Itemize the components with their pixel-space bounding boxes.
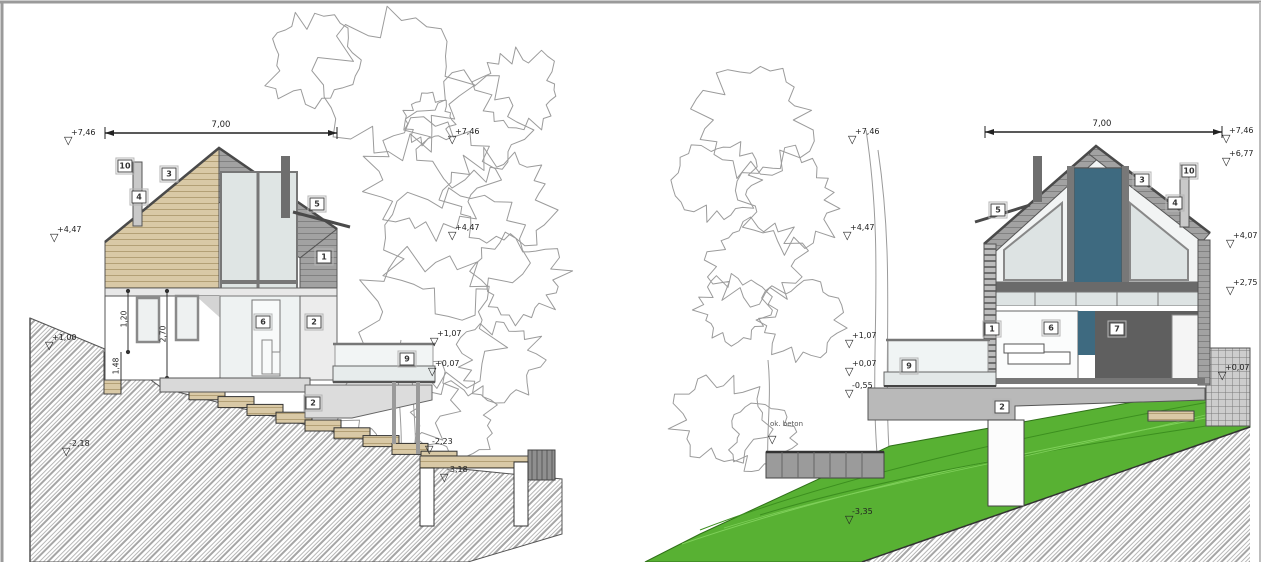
central-blue-window: [1074, 168, 1122, 290]
lower-slab: [305, 385, 432, 418]
chimney: [281, 156, 290, 218]
sections-drawing: [0, 0, 1280, 562]
balustrade-glass: [888, 340, 988, 372]
balcony-deck: [884, 372, 996, 386]
foundation-pier: [514, 462, 528, 526]
top-dimension-line: [105, 127, 337, 139]
bed-furniture: [1008, 352, 1070, 364]
clerestory-band: [994, 292, 1200, 306]
blue-glass-slice: [1078, 311, 1095, 355]
interior-door: [252, 300, 280, 376]
gable-wood-cladding: [105, 148, 219, 290]
wall-strip-right: [1198, 240, 1210, 385]
left-view: [30, 6, 573, 562]
retaining-wall: [766, 452, 884, 478]
window: [137, 298, 159, 342]
grid-retaining-wall: [1206, 348, 1250, 426]
walkway-slab: [420, 456, 528, 468]
right-view: [645, 66, 1250, 562]
timber-plank: [1148, 411, 1194, 421]
floor-slab: [160, 378, 310, 392]
window: [176, 296, 198, 340]
chimney: [1033, 156, 1042, 202]
foundation-pier: [420, 468, 434, 526]
balustrade-glass: [335, 344, 433, 367]
architectural-drawing-sheet: +7,46▽+4,47▽+1,00▽-2,18▽+7,46▽+4,47▽+1,0…: [0, 0, 1280, 562]
top-dimension-line: [985, 126, 1222, 138]
roof-vent: [133, 162, 142, 226]
foundation-pier: [988, 420, 1024, 506]
terrace-deck: [333, 366, 435, 382]
roof-vent: [1180, 165, 1189, 227]
retaining-block: [528, 450, 555, 480]
tree-outlines-right: [668, 66, 890, 471]
